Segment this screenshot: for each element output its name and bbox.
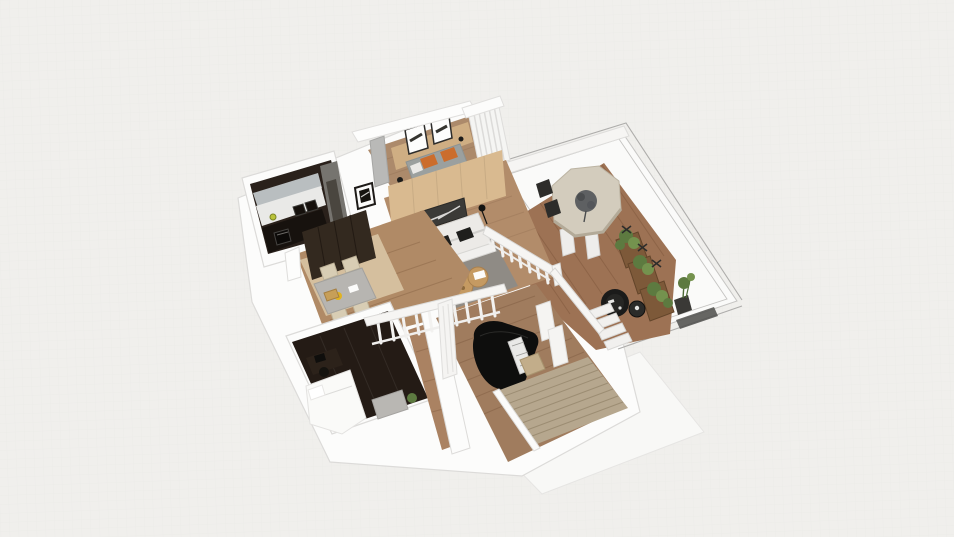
bedside-lamp[interactable]: [459, 137, 464, 142]
potted-plant-bedroom2[interactable]: [407, 393, 417, 403]
desk-chair[interactable]: [319, 367, 329, 377]
side-table[interactable]: [629, 301, 645, 317]
kitchen-wall-picture[interactable]: [355, 183, 375, 209]
counter-item: [270, 214, 276, 220]
floorplan-viewport[interactable]: [0, 0, 954, 537]
open-door-panel[interactable]: [285, 247, 301, 281]
floorplan-canvas[interactable]: [0, 0, 954, 537]
